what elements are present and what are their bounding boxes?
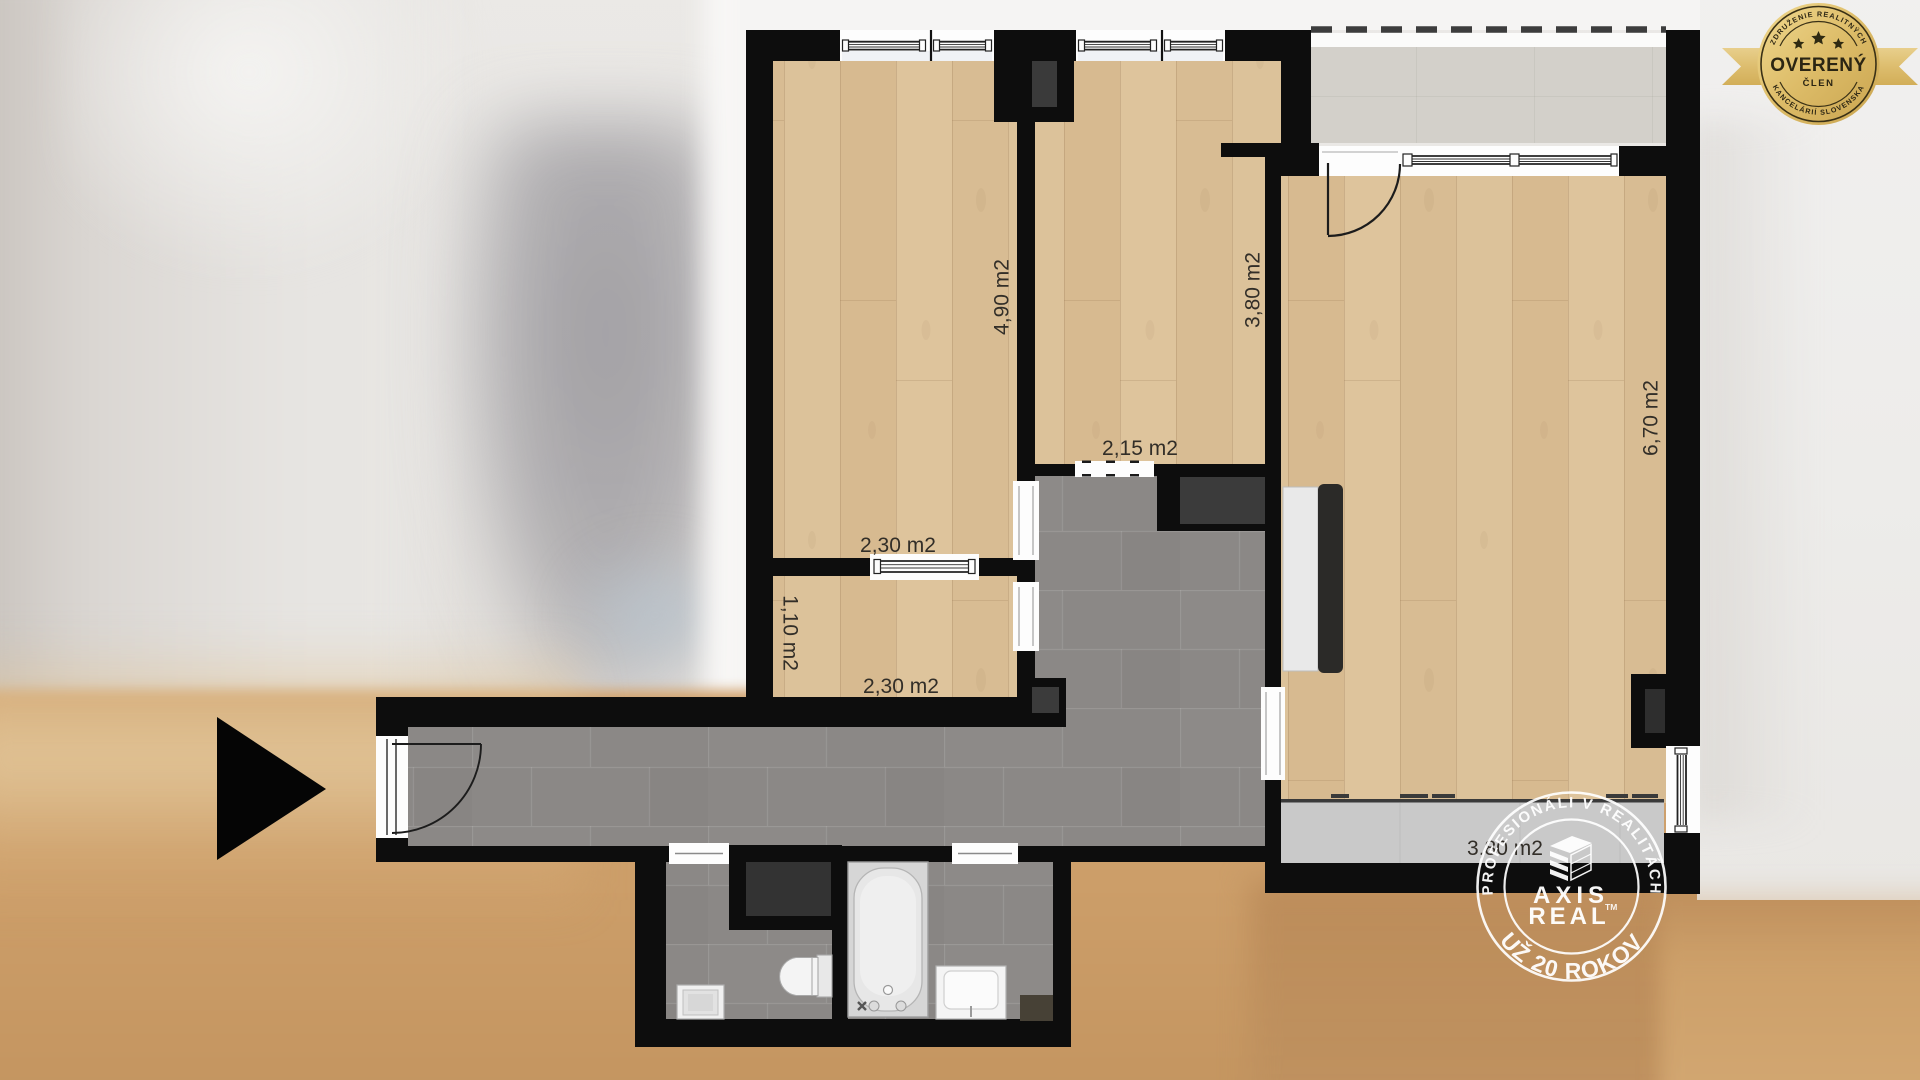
svg-text:6,70 m2: 6,70 m2 <box>1640 380 1663 456</box>
svg-text:UŽ 20 ROKOV: UŽ 20 ROKOV <box>1495 927 1649 984</box>
svg-text:ČLEN: ČLEN <box>1803 77 1835 89</box>
svg-text:1,10 m2: 1,10 m2 <box>778 595 801 671</box>
svg-text:2,30 m2: 2,30 m2 <box>860 534 936 557</box>
svg-text:4,90 m2: 4,90 m2 <box>991 259 1014 335</box>
svg-text:TM: TM <box>1605 902 1617 912</box>
svg-text:OVERENÝ: OVERENÝ <box>1770 54 1866 76</box>
svg-text:REAL: REAL <box>1528 903 1609 930</box>
svg-text:3,80 m2: 3,80 m2 <box>1242 252 1265 328</box>
svg-text:2,15 m2: 2,15 m2 <box>1102 437 1178 460</box>
svg-text:2,30 m2: 2,30 m2 <box>863 675 939 698</box>
